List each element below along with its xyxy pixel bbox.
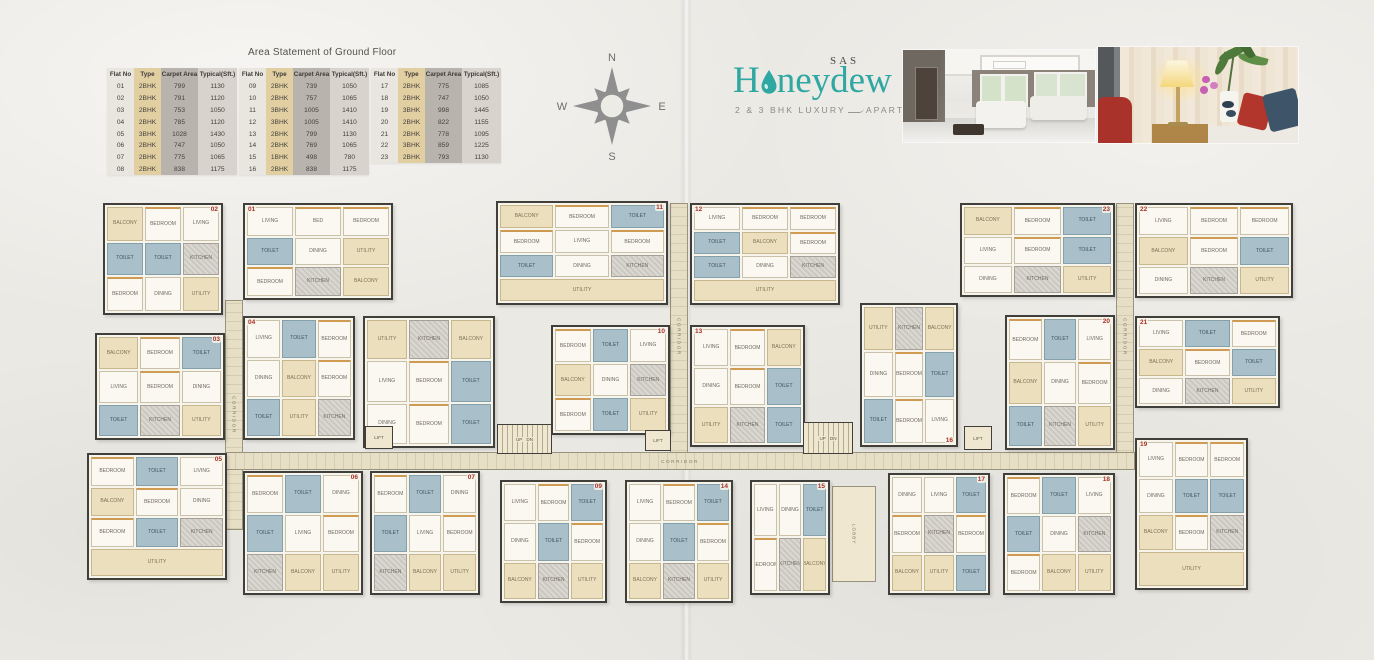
room-kitchen: KITCHEN [730, 407, 764, 443]
table-row: 151BHK498780 [239, 152, 369, 164]
logo-word-end: neydew [777, 60, 892, 101]
room-utility: UTILITY [694, 407, 728, 443]
unit-number: 18 [1102, 476, 1111, 483]
room-utility: UTILITY [697, 563, 729, 599]
table-row: 022BHK7911120 [107, 93, 237, 105]
compass-west-label: W [557, 101, 568, 113]
photo-door [915, 67, 938, 121]
unit-number: 21 [1139, 319, 1148, 326]
room-bedroom: BEDROOM [1014, 237, 1062, 265]
unit-number: 10 [657, 328, 666, 335]
unit-number: 01 [247, 206, 256, 213]
room-kitchen: KITCHEN [247, 554, 283, 591]
apartment-unit-20: 20BEDROOMTOILETLIVINGBALCONYDININGBEDROO… [1005, 315, 1115, 450]
table-cell: 775 [161, 152, 198, 164]
table-cell: 2BHK [134, 163, 161, 175]
room-toilet: TOILET [409, 475, 442, 513]
column-header: Type [266, 68, 293, 81]
apartment-unit-12: 12LIVINGBEDROOMBEDROOMTOILETBALCONYBEDRO… [690, 203, 840, 305]
room-kitchen: KITCHEN [1185, 378, 1229, 404]
table-row: 182BHK7471050 [371, 93, 501, 105]
apartment-unit-22: 22LIVINGBEDROOMBEDROOMBALCONYBEDROOMTOIL… [1135, 203, 1293, 298]
table-cell: 1130 [462, 152, 501, 164]
table-cell: 799 [161, 81, 198, 93]
apartment-unit-18: 18BEDROOMTOILETLIVINGTOILETDININGKITCHEN… [1003, 473, 1115, 595]
room-utility: UTILITY [924, 555, 954, 591]
room-kitchen: KITCHEN [374, 554, 407, 591]
room-toilet: TOILET [1009, 406, 1042, 446]
room-dining: DINING [964, 266, 1012, 293]
room-bedroom: BEDROOM [247, 267, 293, 296]
table-row: 053BHK10281430 [107, 128, 237, 140]
unit-number: 06 [350, 474, 359, 481]
room-bedroom: BEDROOM [374, 475, 407, 513]
column-header: Typical(Sft.) [330, 68, 369, 81]
room-living: LIVING [367, 361, 407, 401]
room-toilet: TOILET [1044, 319, 1077, 360]
room-utility: UTILITY [1232, 378, 1276, 404]
room-balcony: BALCONY [629, 563, 661, 599]
room-dining: DINING [779, 484, 802, 536]
table-cell: 757 [293, 93, 330, 105]
column-header: Type [134, 68, 161, 81]
table-row: 012BHK7991130 [107, 81, 237, 93]
room-living: LIVING [1078, 319, 1111, 360]
unit-rooms: LIVINGBEDROOMBEDROOMTOILETBALCONYBEDROOM… [692, 205, 838, 303]
table-cell: 20 [371, 116, 398, 128]
room-balcony: BALCONY [925, 307, 954, 350]
table-cell: 2BHK [266, 163, 293, 175]
room-dining: DINING [1044, 362, 1077, 403]
room-balcony: BALCONY [504, 563, 536, 599]
room-bedroom: BEDROOM [1007, 554, 1040, 591]
unit-rooms: BALCONYBEDROOMTOILETLIVINGBEDROOMDININGT… [97, 335, 223, 438]
apartment-unit-14: 14LIVINGBEDROOMTOILETDININGTOILETBEDROOM… [625, 480, 733, 603]
room-bedroom: BEDROOM [1175, 442, 1209, 477]
table-cell: 3BHK [266, 116, 293, 128]
table-cell: 793 [425, 152, 462, 164]
stair-down-label: DN [525, 437, 534, 442]
table-cell: 2BHK [134, 140, 161, 152]
room-balcony: BALCONY [282, 360, 315, 398]
apartment-unit-21: 21LIVINGTOILETBEDROOMBALCONYBEDROOMTOILE… [1135, 316, 1280, 408]
room-bedroom: BEDROOM [247, 475, 283, 513]
room-bedroom: BEDROOM [91, 518, 134, 547]
table-cell: 1430 [198, 128, 237, 140]
room-living: LIVING [964, 237, 1012, 265]
room-kitchen: KITCHEN [790, 256, 836, 278]
room-kitchen: KITCHEN [895, 307, 924, 350]
room-living: LIVING [285, 515, 321, 553]
room-toilet: TOILET [925, 352, 954, 396]
room-utility: UTILITY [630, 398, 666, 431]
apartment-unit-03: 03BALCONYBEDROOMTOILETLIVINGBEDROOMDININ… [95, 333, 225, 440]
room-kitchen: KITCHEN [663, 563, 695, 599]
table-cell: 498 [293, 152, 330, 164]
table-cell: 1050 [462, 93, 501, 105]
table-cell: 1005 [293, 105, 330, 117]
table-cell: 04 [107, 116, 134, 128]
room-bedroom: BEDROOM [697, 523, 729, 560]
compass-south-label: S [608, 151, 615, 162]
room-utility: UTILITY [343, 238, 389, 266]
room-dining: DINING [182, 371, 221, 403]
room-dining: DINING [593, 364, 629, 396]
unit-rooms: LIVINGBEDROOMBEDROOMDININGTOILETTOILETBA… [1137, 440, 1246, 588]
table-row: 072BHK7751065 [107, 152, 237, 164]
room-toilet: TOILET [282, 320, 315, 358]
table-cell: 1085 [462, 81, 501, 93]
table-cell: 22 [371, 140, 398, 152]
photo-coffee-table [953, 124, 984, 135]
room-toilet: TOILET [1240, 237, 1289, 265]
room-utility: UTILITY [182, 405, 221, 436]
photo-lamp-stem [1176, 87, 1180, 123]
apartment-unit-04: 04LIVINGTOILETBEDROOMDININGBALCONYBEDROO… [243, 316, 355, 440]
lobby: LOBBY [832, 486, 876, 582]
table-cell: 14 [239, 140, 266, 152]
apartment-unit-06: 06BEDROOMTOILETDININGTOILETLIVINGBEDROOM… [243, 471, 363, 595]
table-cell: 747 [161, 140, 198, 152]
room-utility: UTILITY [571, 563, 603, 599]
room-bedroom: BEDROOM [1078, 362, 1111, 403]
table-cell: 998 [425, 105, 462, 117]
room-dining: DINING [555, 255, 608, 277]
logo-swoosh [848, 108, 864, 113]
room-kitchen: KITCHEN [409, 320, 449, 359]
room-toilet: TOILET [145, 243, 181, 276]
room-dining: DINING [694, 368, 728, 405]
table-cell: 3BHK [266, 105, 293, 117]
table-row: 212BHK7781095 [371, 128, 501, 140]
table-cell: 18 [371, 93, 398, 105]
room-toilet: TOILET [1042, 477, 1075, 514]
table-cell: 09 [239, 81, 266, 93]
table-header-row: Flat NoTypeCarpet AreaTypical(Sft.) [107, 68, 237, 81]
room-balcony: BALCONY [409, 554, 442, 591]
table-row: 123BHK10051410 [239, 116, 369, 128]
table-cell: 1065 [330, 140, 369, 152]
room-bedroom: BEDROOM [754, 538, 777, 591]
area-statement-table: Flat NoTypeCarpet AreaTypical(Sft.)092BH… [239, 68, 369, 175]
room-bedroom: BEDROOM [443, 515, 476, 553]
apartment-unit-17: 17DININGLIVINGTOILETBEDROOMKITCHENBEDROO… [888, 473, 990, 595]
table-cell: 1175 [330, 163, 369, 175]
room-bedroom: BEDROOM [1232, 320, 1276, 347]
unit-rooms: BEDROOMTOILETDININGTOILETLIVINGBEDROOMKI… [372, 473, 478, 593]
room-balcony: BALCONY [767, 329, 801, 366]
room-toilet: TOILET [538, 523, 570, 560]
apartment-unit-11: 11BALCONYBEDROOMTOILETBEDROOMLIVINGBEDRO… [496, 201, 668, 305]
table-cell: 15 [239, 152, 266, 164]
room-bedroom: BEDROOM [555, 329, 591, 362]
room-toilet: TOILET [694, 232, 740, 255]
room-dining: DINING [1139, 378, 1183, 404]
photo-sofa [1030, 96, 1088, 120]
table-cell: 1155 [462, 116, 501, 128]
corridor-center: CORRIDOR [670, 203, 688, 470]
lift: LIFT [964, 426, 992, 450]
room-balcony: BALCONY [91, 488, 134, 517]
room-dining: DINING [742, 256, 788, 278]
table-cell: 1410 [330, 105, 369, 117]
room-utility: UTILITY [1063, 266, 1111, 293]
photo-plant-leaf [1213, 52, 1232, 77]
compass-rose: N S E W [556, 50, 668, 162]
room-bedroom: BEDROOM [730, 329, 764, 366]
room-utility: UTILITY [694, 280, 836, 302]
table-cell: 01 [107, 81, 134, 93]
unit-number: 13 [694, 328, 703, 335]
logo-word-start: H [733, 60, 760, 101]
unit-rooms: LIVINGBEDROOMBEDROOMBALCONYBEDROOMTOILET… [1137, 205, 1291, 296]
unit-number: 09 [594, 483, 603, 490]
room-bedroom: BEDROOM [742, 207, 788, 230]
room-bedroom: BEDROOM [323, 515, 359, 553]
table-row: 082BHK8381175 [107, 163, 237, 175]
unit-number: 14 [720, 483, 729, 490]
unit-number: 05 [214, 456, 223, 463]
room-utility: UTILITY [91, 549, 223, 577]
room-toilet: TOILET [593, 329, 629, 362]
unit-rooms: UTILITYKITCHENBALCONYDININGBEDROOMTOILET… [862, 305, 956, 445]
logo-tagline-left: 2 & 3 BHK LUXURY [735, 105, 846, 115]
table-cell: 2BHK [398, 81, 425, 93]
unit-rooms: LIVINGBEDBEDROOMTOILETDININGUTILITYBEDRO… [245, 205, 391, 298]
apartment-unit-13: 13LIVINGBEDROOMBALCONYDININGBEDROOMTOILE… [690, 325, 805, 447]
room-kitchen: KITCHEN [180, 518, 223, 547]
table-cell: 23 [371, 152, 398, 164]
table-cell: 2BHK [134, 152, 161, 164]
room-balcony: BALCONY [1042, 554, 1075, 591]
room-living: LIVING [924, 477, 954, 513]
room-toilet: TOILET [136, 518, 179, 547]
room-balcony: BALCONY [803, 538, 826, 591]
unit-rooms: LIVINGBEDROOMBALCONYDININGBEDROOMTOILETU… [692, 327, 803, 445]
room-toilet: TOILET [1232, 349, 1276, 376]
room-living: LIVING [754, 484, 777, 536]
unit-rooms: DININGLIVINGTOILETBEDROOMKITCHENBEDROOMB… [890, 475, 988, 593]
room-kitchen: KITCHEN [538, 563, 570, 599]
room-toilet: TOILET [374, 515, 407, 553]
room-toilet: TOILET [500, 255, 553, 277]
room-toilet: TOILET [99, 405, 138, 436]
table-row: 102BHK7571065 [239, 93, 369, 105]
room-dining: DINING [629, 523, 661, 560]
unit-rooms: BEDROOMTOILETLIVINGTOILETDININGKITCHENBE… [1005, 475, 1113, 593]
room-bedroom: BEDROOM [571, 523, 603, 560]
table-cell: 17 [371, 81, 398, 93]
compass-east-label: E [658, 101, 665, 113]
table-row: 232BHK7931130 [371, 152, 501, 164]
room-bedroom: BEDROOM [1210, 442, 1244, 477]
table-cell: 838 [293, 163, 330, 175]
room-dining: DINING [1139, 479, 1173, 513]
room-toilet: TOILET [136, 457, 179, 486]
room-toilet: TOILET [767, 407, 801, 443]
photo-air-conditioner [993, 61, 1026, 69]
room-kitchen: KITCHEN [630, 364, 666, 396]
room-toilet: TOILET [663, 523, 695, 560]
table-cell: 780 [330, 152, 369, 164]
table-row: 092BHK7391050 [239, 81, 369, 93]
table-row: 132BHK7991130 [239, 128, 369, 140]
room-bed: BED [295, 207, 341, 236]
unit-number: 02 [210, 206, 219, 213]
unit-rooms: LIVINGTOILETBEDROOMDININGBALCONYBEDROOMT… [245, 318, 353, 438]
room-bedroom: BEDROOM [409, 361, 449, 401]
room-balcony: BALCONY [285, 554, 321, 591]
room-toilet: TOILET [956, 555, 986, 591]
room-bedroom: BEDROOM [318, 320, 351, 358]
room-toilet: TOILET [593, 398, 629, 431]
room-bedroom: BEDROOM [663, 484, 695, 521]
photo-side-table [1152, 124, 1208, 143]
room-living: LIVING [629, 484, 661, 521]
table-cell: 2BHK [398, 93, 425, 105]
apartment-unit-07: 07BEDROOMTOILETDININGTOILETLIVINGBEDROOM… [370, 471, 480, 595]
column-header: Flat No [371, 68, 398, 81]
table-cell: 1410 [330, 116, 369, 128]
table-cell: 05 [107, 128, 134, 140]
table-cell: 1028 [161, 128, 198, 140]
room-bedroom: BEDROOM [1009, 319, 1042, 360]
unit-number: 19 [1139, 441, 1148, 448]
table-cell: 785 [161, 116, 198, 128]
table-cell: 2BHK [134, 93, 161, 105]
unit-number: 11 [655, 204, 664, 211]
room-bedroom: BEDROOM [790, 232, 836, 255]
room-living: LIVING [409, 515, 442, 553]
unit-number: 20 [1102, 318, 1111, 325]
room-bedroom: BEDROOM [555, 398, 591, 431]
table-cell: 2BHK [266, 140, 293, 152]
room-balcony: BALCONY [1139, 237, 1188, 265]
room-balcony: BALCONY [964, 207, 1012, 235]
brochure-page: Area Statement of Ground Floor N S E W S… [0, 0, 1374, 660]
water-drop-icon [761, 70, 777, 94]
unit-rooms: BEDROOMTOILETLIVINGBALCONYDININGKITCHENB… [553, 327, 668, 433]
room-living: LIVING [555, 230, 608, 253]
compass-star [573, 67, 651, 145]
room-kitchen: KITCHEN [140, 405, 179, 436]
table-row: 172BHK7751085 [371, 81, 501, 93]
unit-rooms: BEDROOMTOILETLIVINGBALCONYBEDROOMDININGB… [89, 455, 225, 578]
unit-number: 22 [1139, 206, 1148, 213]
column-header: Flat No [107, 68, 134, 81]
room-toilet: TOILET [1007, 516, 1040, 552]
table-cell: 10 [239, 93, 266, 105]
room-bedroom: BEDROOM [91, 457, 134, 486]
table-row: 162BHK8381175 [239, 163, 369, 175]
unit-rooms: BALCONYBEDROOMTOILETBEDROOMLIVINGBEDROOM… [498, 203, 666, 303]
table-cell: 1050 [198, 105, 237, 117]
table-row: 032BHK7531050 [107, 105, 237, 117]
table-row: 202BHK8221155 [371, 116, 501, 128]
table-cell: 753 [161, 105, 198, 117]
room-bedroom: BEDROOM [1185, 349, 1229, 376]
room-utility: UTILITY [323, 554, 359, 591]
room-balcony: BALCONY [343, 267, 389, 296]
table-cell: 822 [425, 116, 462, 128]
table-cell: 13 [239, 128, 266, 140]
room-toilet: TOILET [247, 515, 283, 553]
area-statement-table: Flat NoTypeCarpet AreaTypical(Sft.)172BH… [371, 68, 501, 163]
lift: LIFT [645, 430, 671, 451]
room-balcony: BALCONY [892, 555, 922, 591]
table-cell: 1065 [330, 93, 369, 105]
corridor-left: CORRIDOR [225, 300, 243, 530]
column-header: Carpet Area [293, 68, 330, 81]
room-kitchen: KITCHEN [924, 515, 954, 552]
unit-number: 12 [694, 206, 703, 213]
room-bedroom: BEDROOM [1175, 515, 1209, 550]
room-balcony: BALCONY [500, 205, 553, 228]
apartment-unit-10: 10BEDROOMTOILETLIVINGBALCONYDININGKITCHE… [551, 325, 670, 435]
room-bedroom: BEDROOM [895, 399, 924, 443]
unit-rooms: LIVINGDININGTOILETBEDROOMKITCHENBALCONY [752, 482, 828, 593]
room-bedroom: BEDROOM [409, 404, 449, 444]
room-utility: UTILITY [864, 307, 893, 350]
table-cell: 775 [425, 81, 462, 93]
corridor-main: CORRIDOR [225, 452, 1135, 470]
room-kitchen: KITCHEN [295, 267, 341, 296]
room-toilet: TOILET [1175, 479, 1209, 513]
table-cell: 16 [239, 163, 266, 175]
room-utility: UTILITY [500, 279, 664, 301]
table-cell: 1120 [198, 93, 237, 105]
table-cell: 1175 [198, 163, 237, 175]
lift: LIFT [365, 426, 393, 449]
stair-up-label: UP [515, 437, 523, 442]
logo-wordmark: Hneydew [733, 61, 892, 101]
apartment-unit-19: 19LIVINGBEDROOMBEDROOMDININGTOILETTOILET… [1135, 438, 1248, 590]
room-toilet: TOILET [107, 243, 143, 276]
room-balcony: BALCONY [1139, 515, 1173, 550]
unit-number: 16 [945, 437, 954, 444]
room-kitchen: KITCHEN [779, 538, 802, 591]
honeydew-logo: SAS Hneydew 2 & 3 BHK LUXURYAPARTMENTS [733, 55, 913, 130]
room-toilet: TOILET [767, 368, 801, 405]
table-cell: 11 [239, 105, 266, 117]
table-cell: 1120 [198, 116, 237, 128]
staircase: UP DN [497, 424, 552, 454]
table-cell: 2BHK [134, 105, 161, 117]
room-dining: DINING [145, 277, 181, 311]
area-statement-table: Flat NoTypeCarpet AreaTypical(Sft.)012BH… [107, 68, 237, 175]
room-toilet: TOILET [1210, 479, 1244, 513]
table-row: 193BHK9981445 [371, 105, 501, 117]
apartment-unit-01: 01LIVINGBEDBEDROOMTOILETDININGUTILITYBED… [243, 203, 393, 300]
table-cell: 1130 [198, 81, 237, 93]
room-bedroom: BEDROOM [790, 207, 836, 230]
table-cell: 778 [425, 128, 462, 140]
room-toilet: TOILET [864, 399, 893, 443]
table-cell: 2BHK [266, 81, 293, 93]
stair-down-label: DN [829, 436, 838, 441]
room-dining: DINING [504, 523, 536, 560]
room-toilet: TOILET [1185, 320, 1229, 347]
unit-number: 07 [467, 474, 476, 481]
unit-rooms: LIVINGBEDROOMTOILETDININGTOILETBEDROOMBA… [627, 482, 731, 601]
room-living: LIVING [99, 371, 138, 403]
room-living: LIVING [504, 484, 536, 521]
apartment-unit-15: 15LIVINGDININGTOILETBEDROOMKITCHENBALCON… [750, 480, 830, 595]
room-bedroom: BEDROOM [956, 515, 986, 552]
unit-rooms: BEDROOMTOILETDININGTOILETLIVINGBEDROOMKI… [245, 473, 361, 593]
table-cell: 3BHK [398, 105, 425, 117]
table-cell: 3BHK [398, 140, 425, 152]
